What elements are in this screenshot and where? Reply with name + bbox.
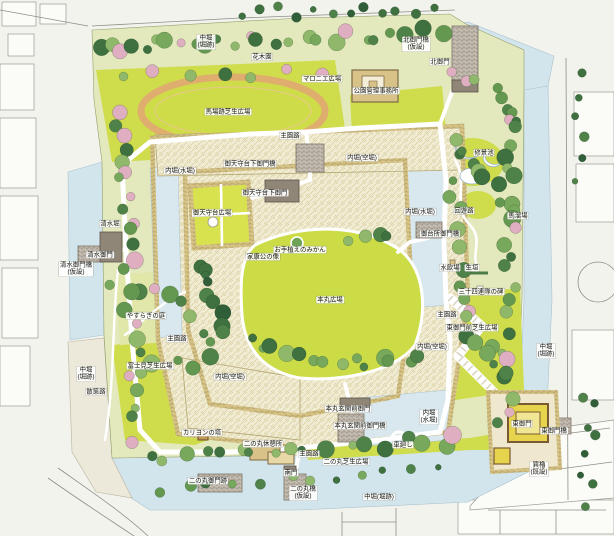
tree — [382, 355, 394, 367]
tree — [130, 383, 144, 397]
tree — [443, 190, 456, 203]
tree — [578, 69, 587, 78]
tree — [379, 9, 387, 17]
tree — [495, 198, 505, 208]
tree — [262, 338, 277, 353]
tree — [157, 456, 167, 466]
tree — [248, 32, 262, 46]
tree — [450, 221, 466, 237]
tree — [174, 356, 183, 365]
tree — [579, 154, 587, 162]
tree — [143, 355, 161, 373]
blossom-tree — [132, 319, 141, 328]
tree — [490, 360, 498, 368]
tree — [579, 132, 589, 142]
tree — [116, 302, 132, 318]
tree — [491, 176, 507, 192]
tree — [118, 263, 129, 274]
tree — [496, 92, 508, 104]
tree — [124, 283, 141, 300]
mikan-tree — [291, 237, 303, 249]
carillon-tower — [198, 430, 208, 440]
tree — [155, 488, 165, 498]
tree — [397, 26, 414, 43]
tree — [497, 149, 514, 166]
regiment-monument — [477, 286, 483, 291]
blossom-tree — [338, 24, 353, 39]
tree — [347, 10, 355, 18]
tree — [126, 411, 137, 422]
tree — [474, 169, 490, 185]
tree — [498, 259, 510, 271]
map-artwork — [0, 0, 614, 536]
tree — [255, 5, 265, 15]
blossom-tree — [444, 426, 462, 444]
blossom-tree — [126, 192, 135, 201]
tree — [435, 25, 452, 42]
tree — [333, 477, 340, 484]
tree — [119, 72, 128, 81]
tree — [272, 449, 281, 458]
tree — [377, 441, 393, 457]
tree — [381, 231, 391, 241]
tree — [317, 441, 334, 458]
tree — [360, 363, 368, 371]
odaidokoro-bridge — [416, 222, 442, 238]
shimizu-gate — [100, 232, 122, 262]
tree — [343, 236, 353, 246]
tree — [248, 334, 256, 342]
blossom-tree — [505, 407, 515, 417]
tree — [503, 328, 515, 340]
tree — [352, 354, 362, 364]
tree — [197, 37, 214, 54]
tree — [391, 7, 400, 16]
tree — [289, 471, 299, 481]
tree — [584, 424, 591, 431]
tree — [590, 430, 600, 440]
tree — [431, 4, 439, 12]
tree — [454, 281, 466, 293]
tree — [379, 467, 386, 474]
tree — [588, 479, 597, 488]
tree — [231, 42, 240, 51]
tree — [413, 435, 430, 452]
tree — [572, 178, 578, 184]
tree — [359, 230, 372, 243]
tree — [203, 446, 213, 456]
shimizu-bridge — [78, 246, 102, 262]
tree — [359, 2, 369, 12]
honmaru-genkan-gate — [340, 398, 370, 410]
tree — [292, 13, 302, 23]
tree — [136, 348, 145, 357]
tree — [577, 472, 584, 479]
water-fountain — [450, 260, 455, 265]
tree — [228, 480, 236, 488]
tree — [273, 2, 282, 11]
tree — [305, 476, 315, 486]
tree — [212, 35, 221, 44]
tree — [415, 20, 432, 37]
tenshudai-shita-bridge — [296, 144, 324, 172]
tree — [493, 83, 503, 93]
tree — [298, 446, 306, 454]
blossom-tree — [282, 64, 292, 74]
fountain — [208, 217, 218, 227]
tree — [317, 356, 328, 367]
blossom-tree — [510, 222, 522, 234]
tree — [575, 94, 582, 101]
tree — [449, 177, 457, 185]
blossom-tree — [146, 65, 159, 78]
tree — [329, 10, 337, 18]
tree — [450, 133, 463, 146]
tree — [127, 238, 140, 251]
tree — [285, 442, 298, 455]
tree — [292, 347, 306, 361]
tree — [511, 282, 521, 292]
blossom-tree — [117, 128, 132, 143]
tree — [105, 280, 115, 290]
tree — [310, 6, 316, 12]
blossom-tree — [149, 283, 160, 294]
tree — [337, 359, 348, 370]
tree — [492, 417, 503, 428]
tree — [581, 450, 588, 457]
tree — [410, 349, 424, 363]
tree — [503, 293, 516, 306]
tree — [506, 167, 523, 184]
tree — [202, 348, 219, 365]
tenshudai-plaza — [190, 182, 260, 251]
tree — [506, 392, 521, 407]
tree — [581, 503, 589, 511]
tree — [358, 471, 367, 480]
tree — [114, 173, 123, 182]
tree — [206, 337, 215, 346]
blossom-tree — [126, 436, 139, 449]
tree — [185, 70, 197, 82]
tree — [216, 325, 230, 339]
blossom-tree — [499, 351, 515, 367]
tree — [129, 331, 146, 348]
blossom-tree — [316, 68, 329, 81]
tree — [452, 240, 467, 255]
tree — [180, 447, 195, 462]
tree — [214, 447, 225, 458]
tree — [244, 448, 253, 457]
tree — [356, 437, 372, 453]
tree — [310, 34, 321, 45]
park-office — [352, 70, 398, 102]
tree — [176, 296, 187, 307]
tree — [124, 39, 139, 54]
tree — [469, 75, 479, 85]
tree — [406, 464, 415, 473]
tree — [185, 480, 197, 492]
tree — [156, 32, 172, 48]
tree — [385, 28, 395, 38]
higashigomon-tatsumi-yagura — [488, 392, 560, 472]
blossom-tree — [447, 67, 457, 77]
blossom-tree — [112, 105, 127, 120]
tree — [578, 393, 588, 403]
tree — [497, 237, 512, 252]
tree — [271, 39, 282, 50]
tree — [411, 9, 421, 19]
blossom-tree — [124, 371, 134, 381]
tree — [147, 451, 157, 461]
tree — [143, 45, 152, 54]
tree — [368, 35, 378, 45]
tree — [284, 38, 293, 47]
tree — [117, 204, 128, 215]
tree — [499, 366, 513, 380]
tree — [186, 361, 201, 376]
tree — [460, 310, 472, 322]
tree — [239, 13, 246, 20]
tree — [124, 222, 137, 235]
tree — [454, 201, 467, 214]
blossom-tree — [177, 39, 185, 47]
tree — [183, 310, 196, 323]
tree — [500, 305, 513, 318]
tree — [255, 479, 265, 489]
tree — [457, 147, 466, 156]
tree — [203, 277, 212, 286]
tree — [435, 464, 441, 470]
tree — [591, 399, 599, 407]
tree — [509, 120, 522, 133]
park-map: 中堀 (堀跡)花木園マロニエ広場公園管理事務所北御門橋 (仮設)北御門馬場跡芝生… — [0, 0, 614, 536]
tree — [456, 262, 472, 278]
tenshudai-shita-gate — [265, 180, 299, 202]
tree — [199, 329, 208, 338]
honmaru-lawn — [241, 229, 422, 379]
tree — [200, 478, 210, 488]
tree — [571, 113, 578, 120]
tree — [349, 441, 357, 449]
tree — [479, 345, 495, 361]
tree — [458, 293, 469, 304]
tree — [245, 73, 255, 83]
tree — [219, 68, 232, 81]
